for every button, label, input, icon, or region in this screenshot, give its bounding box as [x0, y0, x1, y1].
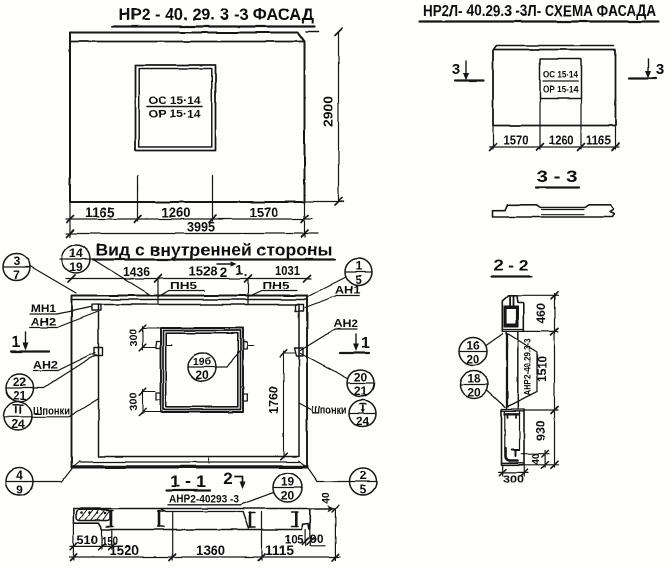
svg-text:1436: 1436	[123, 265, 150, 279]
svg-text:2 - 2: 2 - 2	[494, 258, 529, 275]
svg-text:2: 2	[223, 469, 232, 488]
svg-text:ОР 15-14: ОР 15-14	[543, 85, 579, 96]
svg-text:1520: 1520	[110, 543, 139, 558]
svg-text:20: 20	[354, 370, 368, 384]
svg-text:21: 21	[13, 389, 27, 403]
svg-text:1031: 1031	[275, 264, 300, 278]
svg-text:22: 22	[13, 375, 27, 389]
svg-text:1510: 1510	[535, 356, 549, 382]
svg-text:АН2: АН2	[33, 360, 58, 372]
svg-text:7: 7	[13, 268, 20, 282]
svg-text:1: 1	[355, 259, 362, 273]
svg-text:1: 1	[236, 263, 244, 278]
svg-text:1528: 1528	[189, 265, 218, 279]
svg-text:1760: 1760	[267, 386, 281, 414]
svg-text:ОС 15·14: ОС 15·14	[149, 95, 202, 107]
svg-text:АН2: АН2	[334, 318, 359, 330]
svg-text:24: 24	[11, 417, 25, 431]
svg-text:1570: 1570	[504, 133, 529, 148]
svg-text:510: 510	[77, 533, 98, 547]
svg-text:3: 3	[452, 61, 460, 78]
svg-text:ОС 15-14: ОС 15-14	[543, 70, 579, 81]
svg-text:19: 19	[69, 260, 83, 274]
svg-text:300: 300	[129, 392, 140, 410]
svg-text:АН1: АН1	[335, 285, 360, 297]
svg-text:АН2: АН2	[31, 317, 56, 329]
svg-text:40: 40	[531, 453, 542, 465]
svg-text:1115: 1115	[265, 543, 294, 558]
svg-text:9: 9	[16, 483, 23, 497]
svg-text:20: 20	[467, 386, 481, 400]
svg-text:Шпонки: Шпонки	[33, 406, 70, 418]
svg-text:20: 20	[195, 368, 209, 382]
svg-text:24: 24	[356, 415, 370, 429]
svg-text:НР2Л- 40.29.3 -3Л- СХЕМА ФАСАД: НР2Л- 40.29.3 -3Л- СХЕМА ФАСАДА	[423, 3, 656, 20]
svg-text:19: 19	[281, 475, 295, 489]
svg-text:40: 40	[321, 492, 332, 504]
svg-text:1: 1	[361, 335, 370, 352]
svg-text:1165: 1165	[86, 204, 115, 220]
svg-text:20: 20	[466, 353, 480, 367]
svg-text:3: 3	[656, 61, 664, 78]
svg-text:АНР2-40293 -3: АНР2-40293 -3	[169, 494, 239, 506]
svg-text:5: 5	[360, 483, 367, 497]
svg-text:2: 2	[360, 469, 367, 483]
svg-text:1: 1	[11, 334, 20, 351]
svg-text:3: 3	[13, 254, 20, 268]
svg-text:2900: 2900	[322, 96, 336, 127]
svg-text:МН1: МН1	[31, 303, 56, 315]
svg-text:930: 930	[534, 420, 548, 441]
svg-text:АНР2-40.29.3-3: АНР2-40.29.3-3	[523, 339, 534, 396]
svg-text:19б: 19б	[193, 356, 212, 368]
svg-text:18: 18	[467, 372, 481, 386]
svg-text:460: 460	[534, 303, 548, 323]
svg-text:2: 2	[220, 265, 228, 280]
svg-text:14: 14	[69, 246, 83, 260]
svg-text:1260: 1260	[549, 133, 574, 148]
svg-text:300: 300	[129, 328, 140, 346]
svg-text:16: 16	[466, 339, 480, 353]
svg-text:1360: 1360	[196, 543, 225, 558]
svg-text:1570: 1570	[250, 204, 279, 220]
svg-text:300: 300	[503, 474, 524, 486]
svg-text:НР2 - 40. 29. 3 -3 ФАСАД: НР2 - 40. 29. 3 -3 ФАСАД	[119, 6, 314, 24]
svg-text:ОР 15·14: ОР 15·14	[149, 109, 202, 121]
svg-text:20: 20	[281, 489, 295, 503]
svg-text:1165: 1165	[586, 133, 611, 148]
svg-text:3995: 3995	[187, 219, 215, 235]
svg-text:21: 21	[354, 384, 368, 398]
svg-text:3 - 3: 3 - 3	[537, 167, 578, 186]
svg-text:Шпонки: Шпонки	[312, 405, 347, 417]
svg-text:Вид с внутренней стороны: Вид с внутренней стороны	[96, 242, 333, 260]
svg-text:4: 4	[16, 469, 23, 483]
svg-text:1 - 1: 1 - 1	[170, 472, 206, 491]
